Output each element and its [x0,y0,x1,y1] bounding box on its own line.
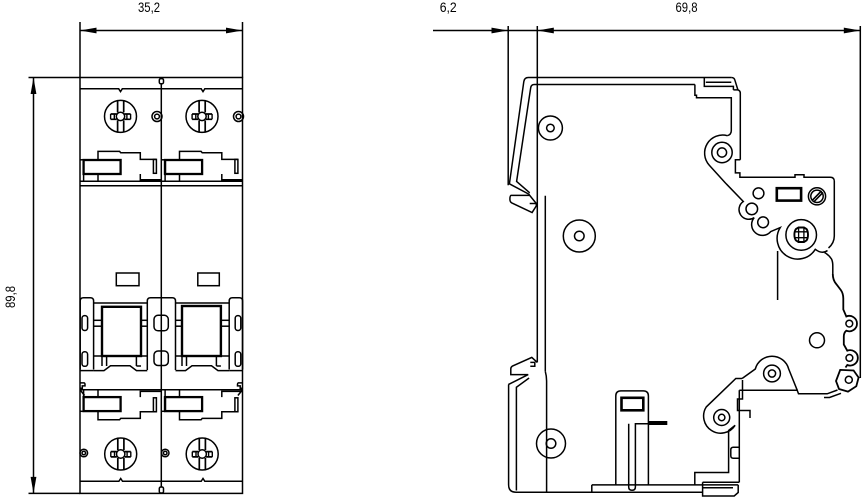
svg-text:6,2: 6,2 [440,0,457,16]
svg-text:35,2: 35,2 [138,0,160,16]
svg-text:69,8: 69,8 [676,0,698,16]
svg-text:89,8: 89,8 [3,286,19,308]
